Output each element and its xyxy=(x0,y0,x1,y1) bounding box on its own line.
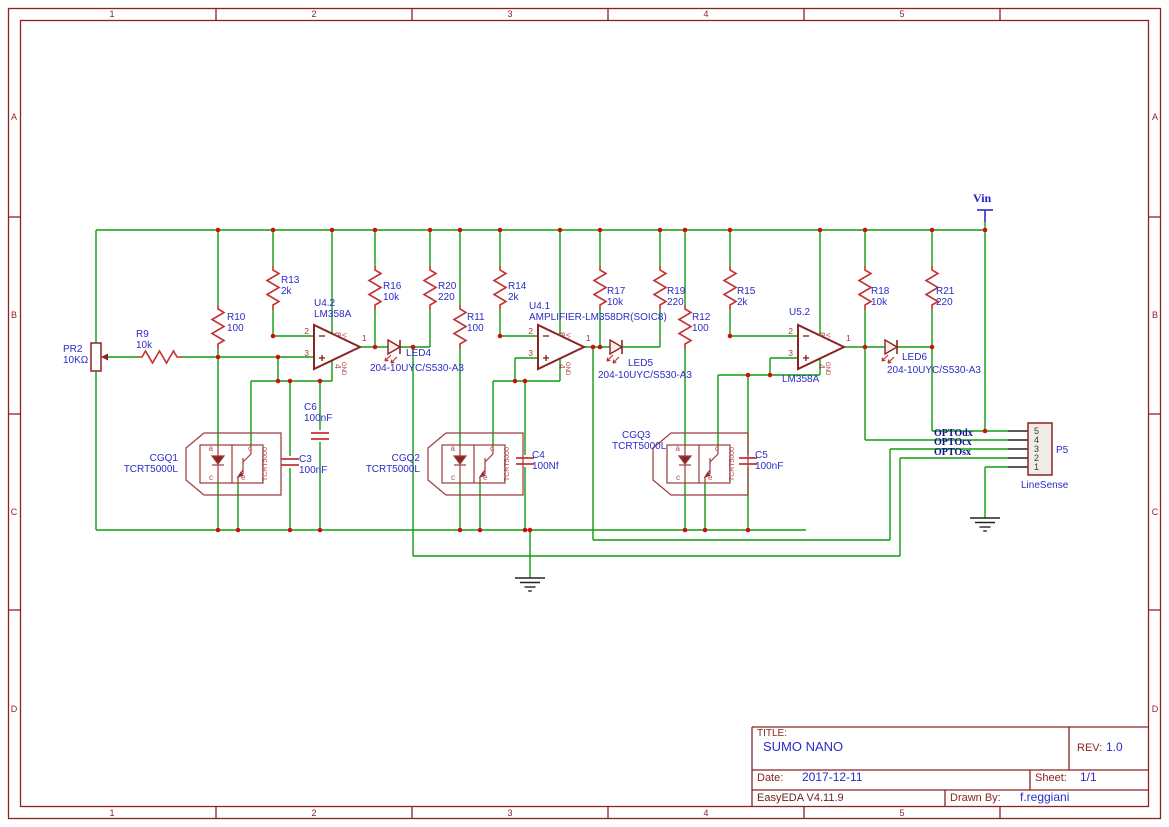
r15-value-label[interactable]: 2k xyxy=(737,298,748,308)
cgq2-ref-label[interactable]: CGQ2 xyxy=(338,454,420,464)
svg-text:c: c xyxy=(209,473,213,482)
p5-ref-label[interactable]: P5 xyxy=(1056,446,1068,456)
resistor-r14[interactable] xyxy=(494,266,506,310)
svg-text:a: a xyxy=(451,444,456,453)
u52-ref-label[interactable]: U5.2 xyxy=(789,308,810,318)
title-block-date-label: Date: xyxy=(757,773,783,783)
r11-ref-label[interactable]: R11 xyxy=(467,313,485,323)
ruler-col-1-top: 1 xyxy=(109,9,114,19)
u42-value-label[interactable]: LM358A xyxy=(314,310,351,320)
r15-ref-label[interactable]: R15 xyxy=(737,287,755,297)
c5-ref-label[interactable]: C5 xyxy=(755,451,768,461)
led6-ref-label[interactable]: LED6 xyxy=(902,353,927,363)
r13-ref-label[interactable]: R13 xyxy=(281,276,299,286)
led4-value-label[interactable]: 204-10UYC/S530-A3 xyxy=(370,364,464,374)
svg-text:TCRT5000: TCRT5000 xyxy=(262,447,269,481)
resistor-r20[interactable] xyxy=(424,266,436,310)
c3-ref-label[interactable]: C3 xyxy=(299,455,312,465)
ruler-row-d-left: D xyxy=(11,704,18,714)
title-block-drawn-by[interactable]: f.reggiani xyxy=(1020,792,1069,802)
title-block-rev[interactable]: 1.0 xyxy=(1106,742,1123,752)
sheet-frame: 1 2 3 4 5 1 2 3 4 5 A B C D A B C D xyxy=(9,9,1161,819)
r14-ref-label[interactable]: R14 xyxy=(508,282,526,292)
ruler-col-4-bottom: 4 xyxy=(703,808,708,818)
resistor-r16[interactable] xyxy=(369,266,381,310)
title-block-tool: EasyEDA V4.11.9 xyxy=(757,793,844,803)
ruler-row-d-right: D xyxy=(1152,704,1159,714)
u41-ref-label[interactable]: U4.1 xyxy=(529,302,550,312)
cgq2-value-label[interactable]: TCRT5000L xyxy=(338,465,420,475)
svg-text:GND: GND xyxy=(824,362,830,376)
title-block-title[interactable]: SUMO NANO xyxy=(763,742,843,752)
ruler-col-4-top: 4 xyxy=(703,9,708,19)
ruler-col-3-top: 3 xyxy=(507,9,512,19)
resistor-r18[interactable] xyxy=(859,266,871,310)
r16-value-label[interactable]: 10k xyxy=(383,293,399,303)
c3-value-label[interactable]: 100nF xyxy=(299,466,327,476)
resistor-r13[interactable] xyxy=(267,266,279,310)
svg-text:a: a xyxy=(209,444,214,453)
net-label-optosx[interactable]: OPTOsx xyxy=(934,448,971,458)
svg-text:c: c xyxy=(676,473,680,482)
svg-text:a: a xyxy=(676,444,681,453)
ruler-row-c-left: C xyxy=(11,507,18,517)
u42-ref-label[interactable]: U4.2 xyxy=(314,299,335,309)
r20-value-label[interactable]: 220 xyxy=(438,293,455,303)
svg-text:2: 2 xyxy=(788,326,793,336)
ruler-col-1-bottom: 1 xyxy=(109,808,114,818)
capacitor-c6[interactable] xyxy=(311,433,329,439)
r16-ref-label[interactable]: R16 xyxy=(383,282,401,292)
ground-symbol-center[interactable] xyxy=(515,578,545,591)
svg-text:V+: V+ xyxy=(824,333,830,341)
c6-value-label[interactable]: 100nF xyxy=(304,414,332,424)
svg-text:3: 3 xyxy=(528,348,533,358)
ruler-col-2-top: 2 xyxy=(311,9,316,19)
r11-value-label[interactable]: 100 xyxy=(467,324,484,334)
svg-text:V+: V+ xyxy=(340,333,346,341)
c4-ref-label[interactable]: C4 xyxy=(532,451,545,461)
led6-value-label[interactable]: 204-10UYC/S530-A3 xyxy=(887,366,981,376)
resistor-r17[interactable] xyxy=(594,266,606,310)
p5-value-label[interactable]: LineSense xyxy=(1021,481,1068,491)
svg-text:TCRT5000: TCRT5000 xyxy=(729,447,736,481)
r14-value-label[interactable]: 2k xyxy=(508,293,519,303)
cgq1-ref-label[interactable]: CGQ1 xyxy=(96,454,178,464)
r19-ref-label[interactable]: R19 xyxy=(667,287,685,297)
led5-value-label[interactable]: 204-10UYC/S530-A3 xyxy=(598,371,692,381)
r21-value-label[interactable]: 220 xyxy=(936,298,953,308)
wire-segments[interactable] xyxy=(96,222,1008,578)
pr2-value-label[interactable]: 10KΩ xyxy=(63,356,88,366)
r12-value-label[interactable]: 100 xyxy=(692,324,709,334)
potentiometer-pr2[interactable] xyxy=(91,343,108,371)
p5-pin-1: 1 xyxy=(1034,462,1039,472)
title-block-rev-label: REV: xyxy=(1077,743,1102,753)
svg-text:GND: GND xyxy=(340,362,346,376)
cgq3-ref-label[interactable]: CGQ3 xyxy=(622,431,650,441)
led5-ref-label[interactable]: LED5 xyxy=(628,359,653,369)
ruler-row-c-right: C xyxy=(1152,507,1159,517)
r10-ref-label[interactable]: R10 xyxy=(227,313,245,323)
svg-text:GND: GND xyxy=(564,362,570,376)
c4-value-label[interactable]: 100Nf xyxy=(532,462,559,472)
ground-symbol-p5[interactable] xyxy=(970,518,1000,531)
r17-value-label[interactable]: 10k xyxy=(607,298,623,308)
svg-text:c: c xyxy=(715,444,719,453)
connector-p5[interactable]: 5 4 3 2 1 xyxy=(1008,423,1052,475)
capacitor-c3[interactable] xyxy=(281,459,299,465)
svg-text:2: 2 xyxy=(528,326,533,336)
ruler-col-2-bottom: 2 xyxy=(311,808,316,818)
resistor-r10[interactable] xyxy=(212,305,224,349)
svg-text:TCRT5000: TCRT5000 xyxy=(504,447,511,481)
r18-ref-label[interactable]: R18 xyxy=(871,287,889,297)
cgq1-value-label[interactable]: TCRT5000L xyxy=(96,465,178,475)
ruler-row-a-left: A xyxy=(11,112,17,122)
led4-ref-label[interactable]: LED4 xyxy=(406,349,431,359)
svg-text:3: 3 xyxy=(304,348,309,358)
svg-text:e: e xyxy=(708,473,713,482)
title-block-sheet-label: Sheet: xyxy=(1035,773,1067,783)
r13-value-label[interactable]: 2k xyxy=(281,287,292,297)
svg-text:1: 1 xyxy=(846,333,851,343)
ruler-col-5-bottom: 5 xyxy=(899,808,904,818)
resistor-r19[interactable] xyxy=(654,266,666,310)
svg-text:c: c xyxy=(490,444,494,453)
u52-value-label[interactable]: LM358A xyxy=(782,375,819,385)
svg-text:1: 1 xyxy=(586,333,591,343)
r9-value-label[interactable]: 10k xyxy=(136,341,152,351)
led-led5[interactable] xyxy=(607,340,622,363)
pr2-ref-label[interactable]: PR2 xyxy=(63,345,82,355)
r17-ref-label[interactable]: R17 xyxy=(607,287,625,297)
svg-text:e: e xyxy=(241,473,246,482)
ruler-row-a-right: A xyxy=(1152,112,1158,122)
resistor-r9[interactable] xyxy=(138,351,182,363)
r10-value-label[interactable]: 100 xyxy=(227,324,244,334)
title-block-drawn-by-label: Drawn By: xyxy=(950,793,1001,803)
ruler-col-5-top: 5 xyxy=(899,9,904,19)
svg-text:2: 2 xyxy=(304,326,309,336)
r9-ref-label[interactable]: R9 xyxy=(136,330,149,340)
resistor-r15[interactable] xyxy=(724,266,736,310)
r19-value-label[interactable]: 220 xyxy=(667,298,684,308)
u41-value-label[interactable]: AMPLIFIER-LM358DR(SOIC8) xyxy=(529,313,667,323)
title-block-sheet[interactable]: 1/1 xyxy=(1080,772,1097,782)
r12-ref-label[interactable]: R12 xyxy=(692,313,710,323)
cgq3-value-label[interactable]: TCRT5000L xyxy=(612,442,666,452)
svg-text:3: 3 xyxy=(788,348,793,358)
vin-net-flag[interactable] xyxy=(977,210,993,222)
svg-text:c: c xyxy=(451,473,455,482)
c6-ref-label[interactable]: C6 xyxy=(304,403,317,413)
led-led6[interactable] xyxy=(882,340,897,363)
svg-text:e: e xyxy=(483,473,488,482)
led-led4[interactable] xyxy=(385,340,400,363)
resistor-r11[interactable] xyxy=(454,305,466,349)
ruler-row-b-right: B xyxy=(1152,310,1158,320)
title-block-title-label: TITLE: xyxy=(757,729,787,739)
schematic-graphics: 1 2 3 4 5 1 2 3 4 5 A B C D A B C D xyxy=(0,0,1169,827)
svg-text:V+: V+ xyxy=(564,333,570,341)
ruler-row-b-left: B xyxy=(11,310,17,320)
r21-ref-label[interactable]: R21 xyxy=(936,287,954,297)
c5-value-label[interactable]: 100nF xyxy=(755,462,783,472)
resistor-r12[interactable] xyxy=(679,305,691,349)
ruler-col-3-bottom: 3 xyxy=(507,808,512,818)
svg-text:c: c xyxy=(248,444,252,453)
svg-text:1: 1 xyxy=(362,333,367,343)
r20-ref-label[interactable]: R20 xyxy=(438,282,456,292)
net-label-vin[interactable]: Vin xyxy=(973,193,991,203)
schematic-canvas: 1 2 3 4 5 1 2 3 4 5 A B C D A B C D xyxy=(0,0,1169,827)
title-block-date[interactable]: 2017-12-11 xyxy=(802,772,863,782)
r18-value-label[interactable]: 10k xyxy=(871,298,887,308)
